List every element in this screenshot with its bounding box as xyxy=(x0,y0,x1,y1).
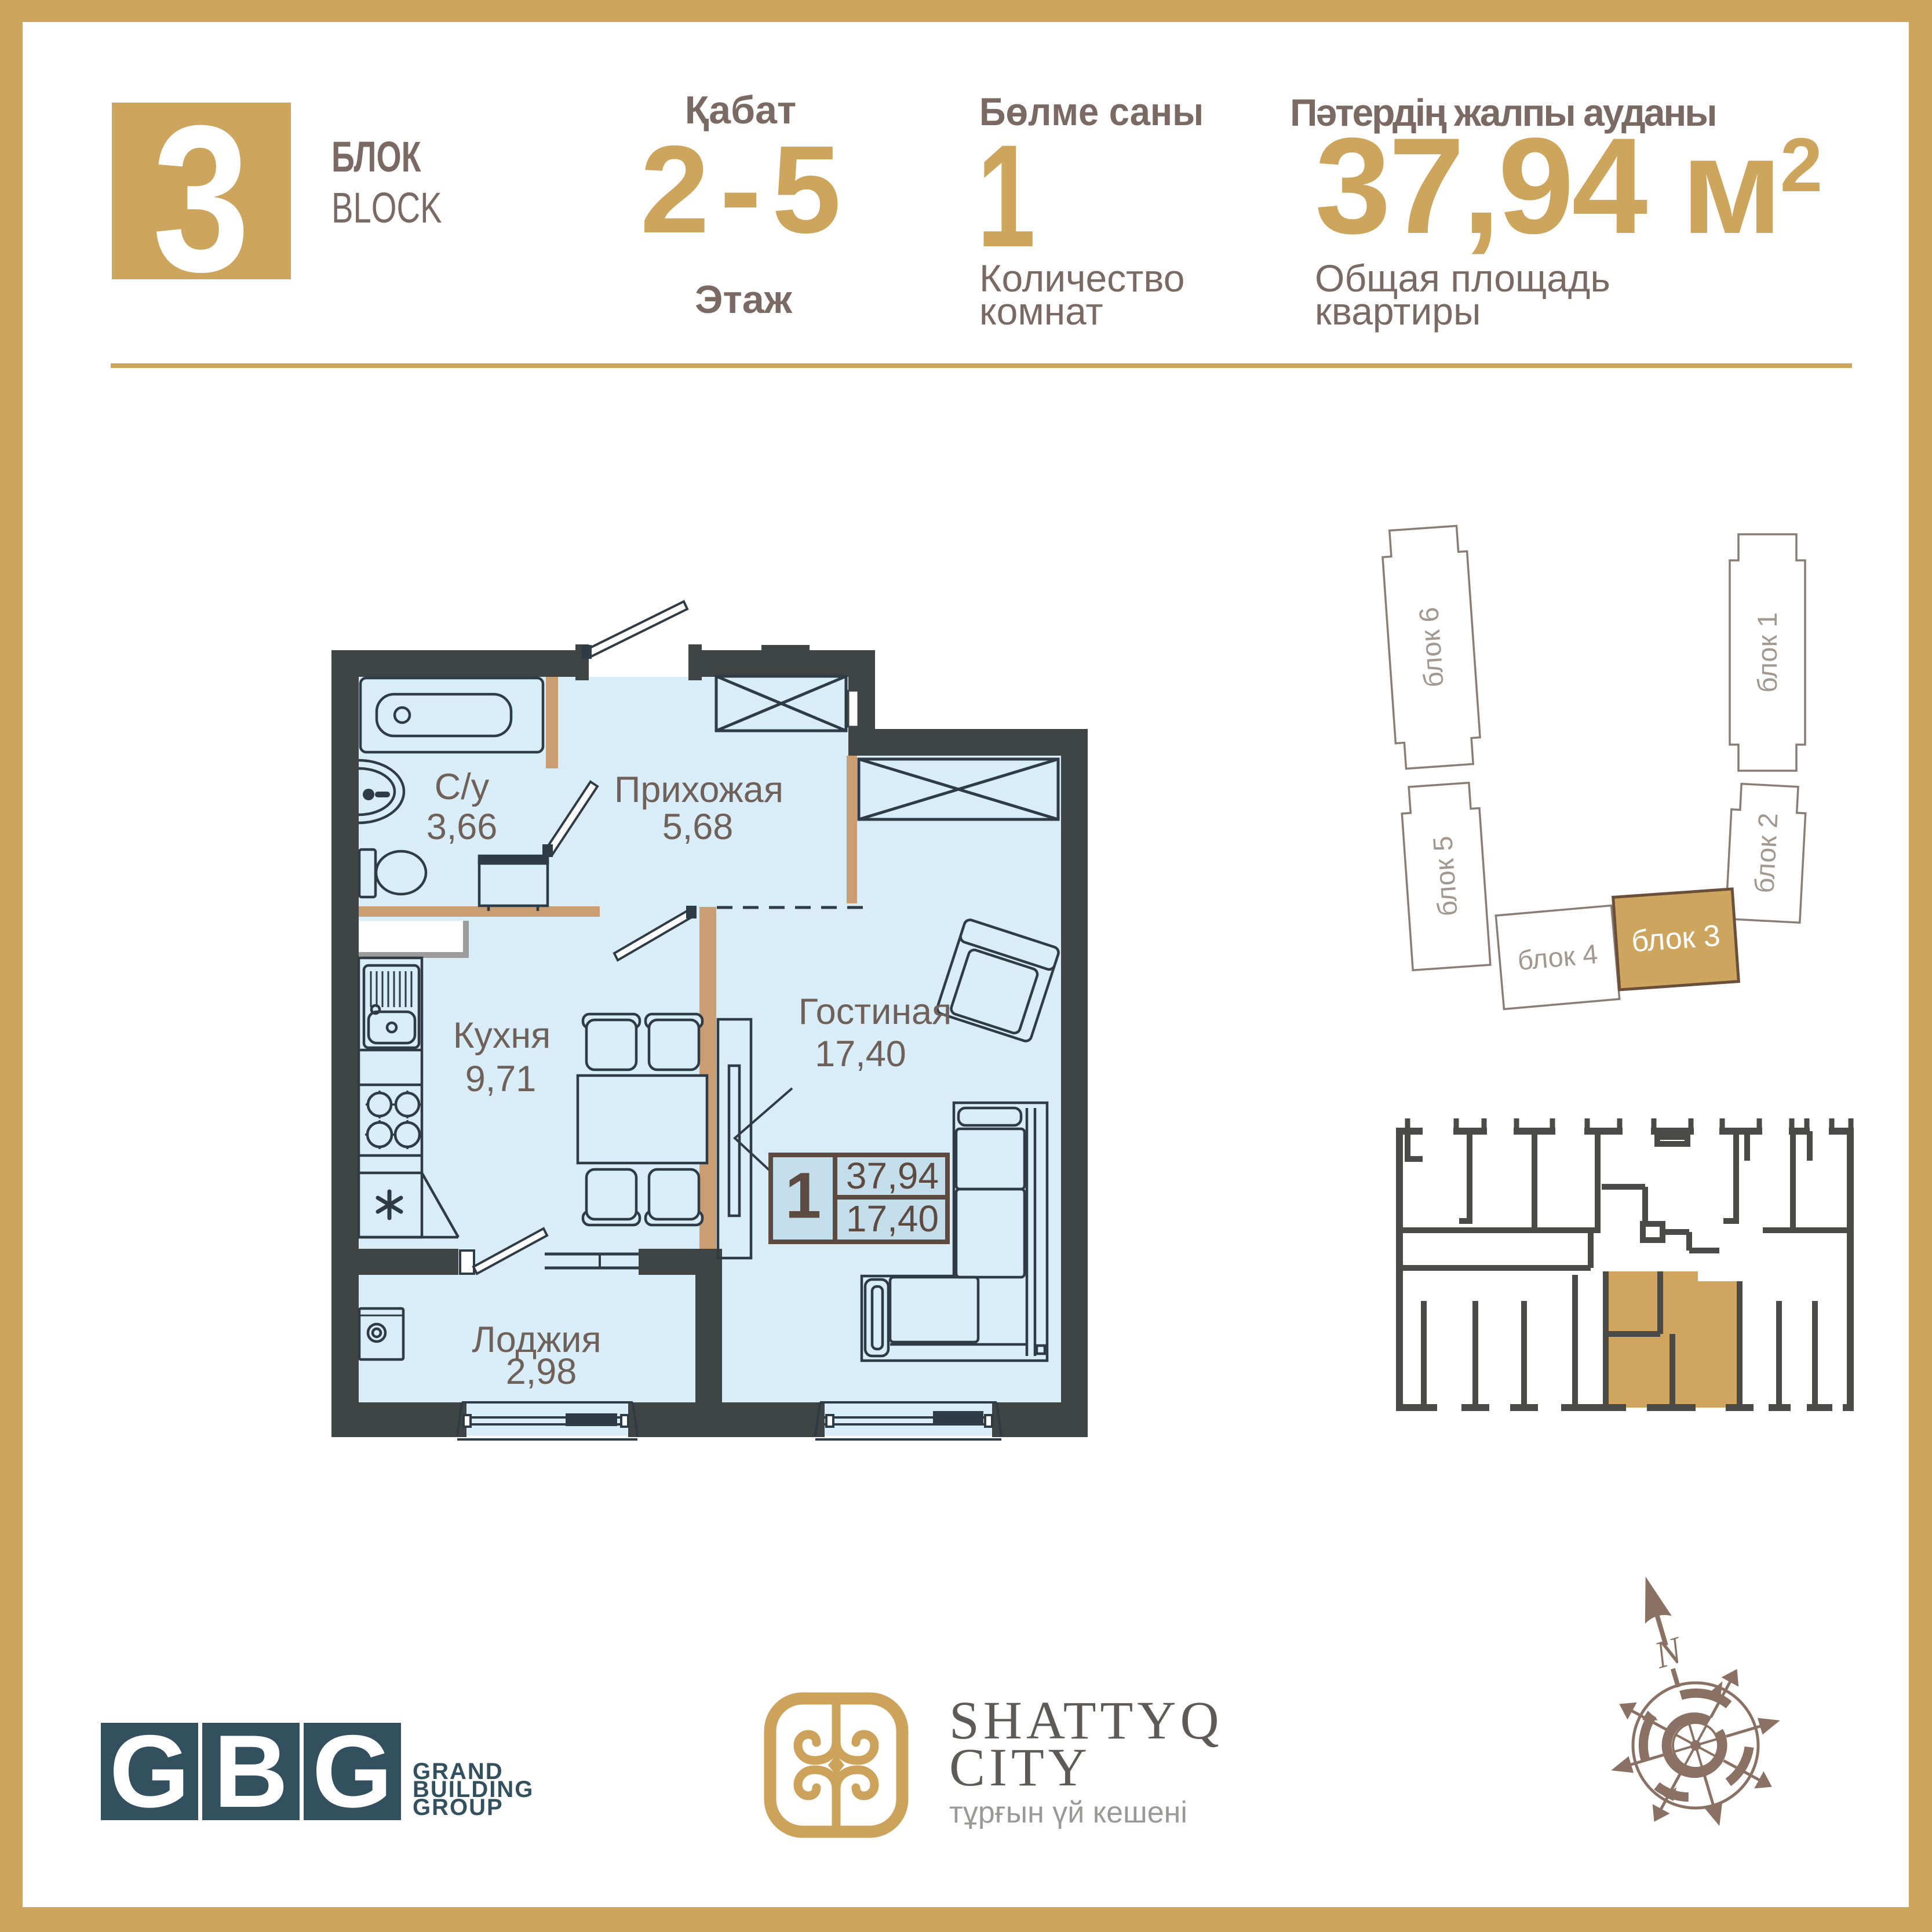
svg-text:2,98: 2,98 xyxy=(506,1351,577,1392)
svg-text:Прихожая: Прихожая xyxy=(614,770,783,810)
svg-text:G: G xyxy=(312,1714,392,1829)
svg-text:1: 1 xyxy=(785,1160,821,1232)
svg-text:С/у: С/у xyxy=(435,767,490,807)
svg-text:3,66: 3,66 xyxy=(427,807,498,847)
svg-text:CITY: CITY xyxy=(949,1738,1091,1798)
svg-text:N: N xyxy=(1649,1628,1689,1677)
svg-text:Кухня: Кухня xyxy=(453,1015,551,1056)
svg-text:5,68: 5,68 xyxy=(662,807,734,847)
svg-text:17,40: 17,40 xyxy=(846,1198,939,1240)
svg-text:блок 3: блок 3 xyxy=(1630,919,1721,959)
svg-text:блок 5: блок 5 xyxy=(1427,835,1463,917)
svg-text:37,94: 37,94 xyxy=(846,1155,939,1197)
svg-text:блок 2: блок 2 xyxy=(1748,812,1783,894)
svg-text:G: G xyxy=(110,1714,189,1829)
svg-text:9,71: 9,71 xyxy=(465,1059,537,1099)
svg-text:17,40: 17,40 xyxy=(815,1034,906,1074)
svg-text:блок 6: блок 6 xyxy=(1413,606,1449,688)
svg-text:Гостиная: Гостиная xyxy=(799,991,952,1032)
svg-text:GROUP: GROUP xyxy=(413,1795,504,1820)
svg-text:тұрғын үй кешені: тұрғын үй кешені xyxy=(949,1796,1187,1829)
svg-text:блок 1: блок 1 xyxy=(1752,613,1782,693)
svg-text:B: B xyxy=(214,1714,289,1829)
